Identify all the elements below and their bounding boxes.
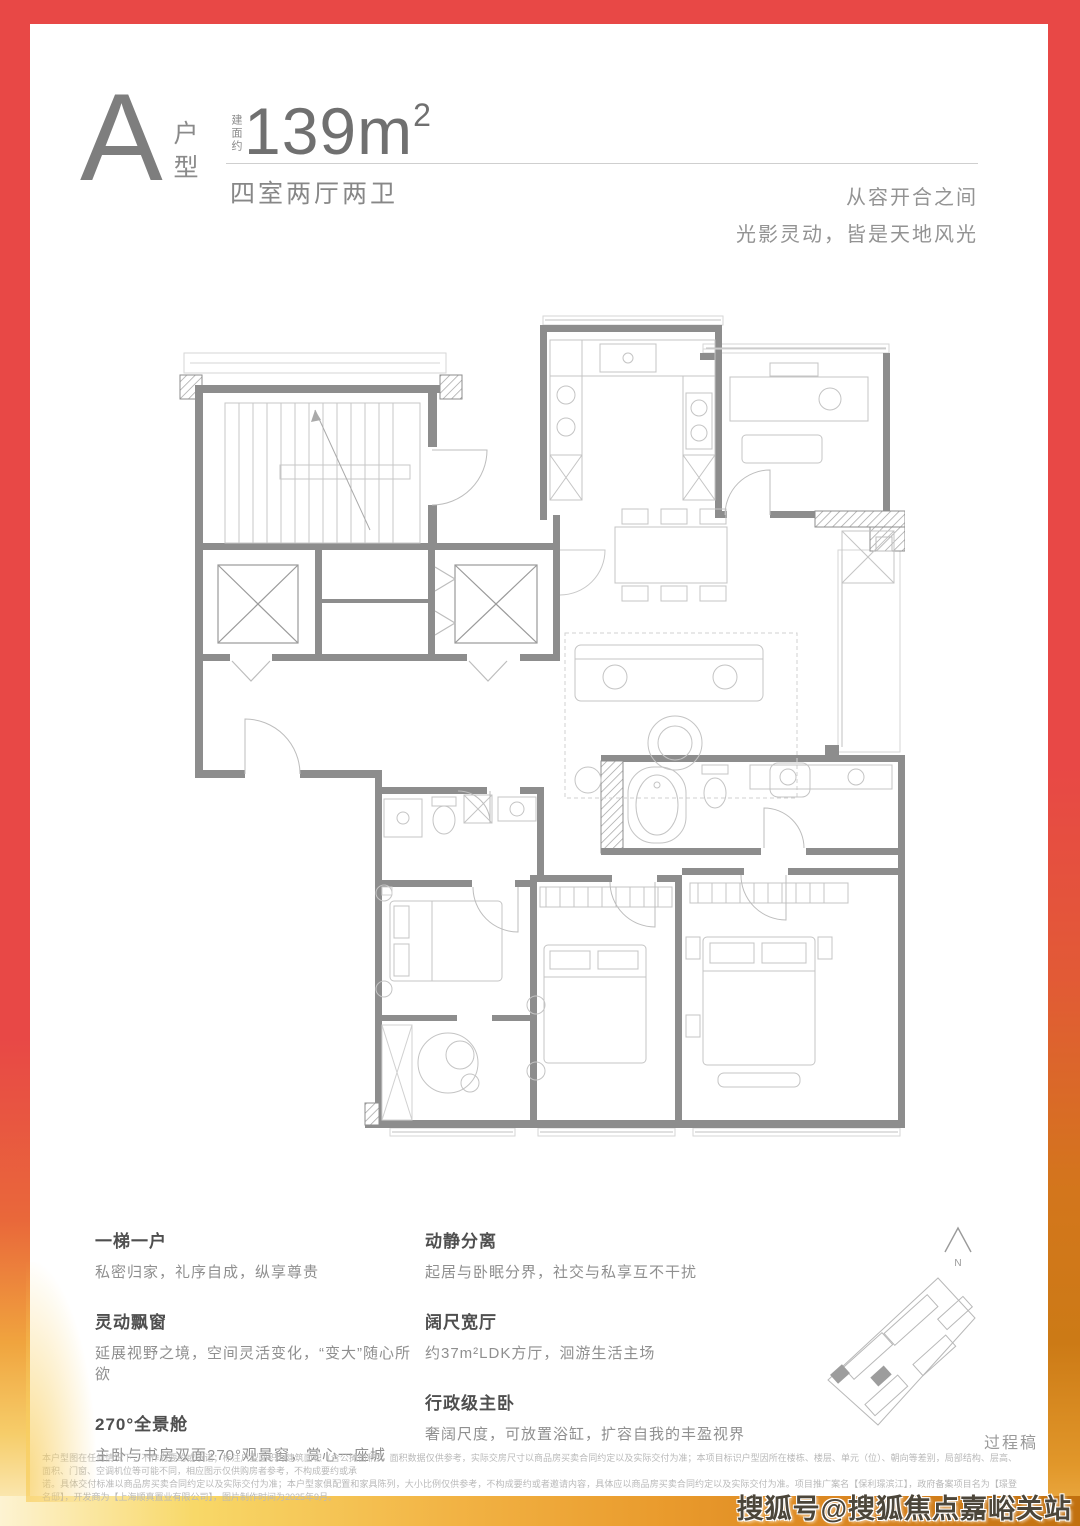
feature-title: 270°全景舱 <box>95 1410 425 1435</box>
feature-title: 阔尺宽厅 <box>425 1308 755 1333</box>
walls <box>180 325 905 1128</box>
frame-border-left <box>0 0 30 1526</box>
feature-item: 动静分离 起居与卧眠分界，社交与私享互不干扰 <box>425 1227 755 1282</box>
feature-desc: 私密归家，礼序自成，纵享尊贵 <box>95 1261 425 1282</box>
bedroom1-furniture <box>376 885 502 997</box>
tagline-line2: 光影灵动，皆是天地风光 <box>736 217 978 254</box>
svg-text:N: N <box>954 1258 961 1269</box>
watermark: 搜狐号@搜狐焦点嘉峪关站 <box>737 1487 1072 1526</box>
master-bathroom <box>628 765 892 843</box>
feature-title: 一梯一户 <box>95 1227 425 1252</box>
unit-letter: A <box>80 76 163 200</box>
unit-type-label: 户型 <box>166 120 202 188</box>
utility-room <box>842 531 894 583</box>
master-bedroom-furniture <box>686 883 848 1087</box>
feature-desc: 奢阔尺度，可放置浴缸，扩容自我的丰盈视界 <box>425 1423 755 1444</box>
stairs <box>225 403 420 543</box>
dining-table <box>615 509 727 601</box>
area-superscript: 2 <box>413 97 432 133</box>
feature-desc: 延展视野之境，空间灵活变化，“变大”随心所欲 <box>95 1342 425 1384</box>
area-number: 139m <box>244 94 413 168</box>
page: A 户型 建面约 139m2 四室两厅两卫 从容开合之间 光影灵动，皆是天地风光 <box>30 24 1048 1496</box>
area-value: 139m2 <box>244 98 432 164</box>
disclaimer-line1: 本户型图在任何情况下，不作为要约或承诺；标注户型面积为建筑面积（含公摊面积），面… <box>42 1452 1017 1478</box>
north-arrow-icon: N <box>945 1228 971 1269</box>
area-prefix-label: 建面约 <box>228 114 244 153</box>
guest-bathroom <box>384 795 536 837</box>
elevator-shafts <box>218 565 537 681</box>
floor-plan-svg <box>170 315 905 1137</box>
header-divider <box>226 163 978 164</box>
study-furniture <box>703 349 886 463</box>
feature-desc: 约37m²LDK方厅，洄游生活主场 <box>425 1342 755 1363</box>
tagline-line1: 从容开合之间 <box>736 180 978 217</box>
frame-border-right <box>1048 0 1080 1526</box>
reading-nook <box>382 1025 479 1120</box>
layout-description: 四室两厅两卫 <box>230 174 398 210</box>
taglines: 从容开合之间 光影灵动，皆是天地风光 <box>736 180 978 254</box>
features-right: 动静分离 起居与卧眠分界，社交与私享互不干扰 阔尺宽厅 约37m²LDK方厅，洄… <box>425 1227 755 1470</box>
poster-root: A 户型 建面约 139m2 四室两厅两卫 从容开合之间 光影灵动，皆是天地风光 <box>0 0 1080 1526</box>
feature-item: 灵动飘窗 延展视野之境，空间灵活变化，“变大”随心所欲 <box>95 1308 425 1384</box>
feature-title: 灵动飘窗 <box>95 1308 425 1333</box>
feature-item: 一梯一户 私密归家，礼序自成，纵享尊贵 <box>95 1227 425 1282</box>
feature-title: 动静分离 <box>425 1227 755 1252</box>
feature-item: 行政级主卧 奢阔尺度，可放置浴缸，扩容自我的丰盈视界 <box>425 1389 755 1444</box>
feature-item: 阔尺宽厅 约37m²LDK方厅，洄游生活主场 <box>425 1308 755 1363</box>
door-swings <box>245 450 804 932</box>
frame-border-top <box>0 0 1080 24</box>
process-draft-note: 过程稿 <box>984 1429 1038 1453</box>
floor-plan <box>170 315 905 1137</box>
kitchen-fixtures <box>550 340 715 500</box>
feature-title: 行政级主卧 <box>425 1389 755 1414</box>
feature-desc: 起居与卧眠分界，社交与私享互不干扰 <box>425 1261 755 1282</box>
siteplan-outline <box>828 1278 975 1425</box>
bedroom2-furniture <box>527 887 672 1080</box>
